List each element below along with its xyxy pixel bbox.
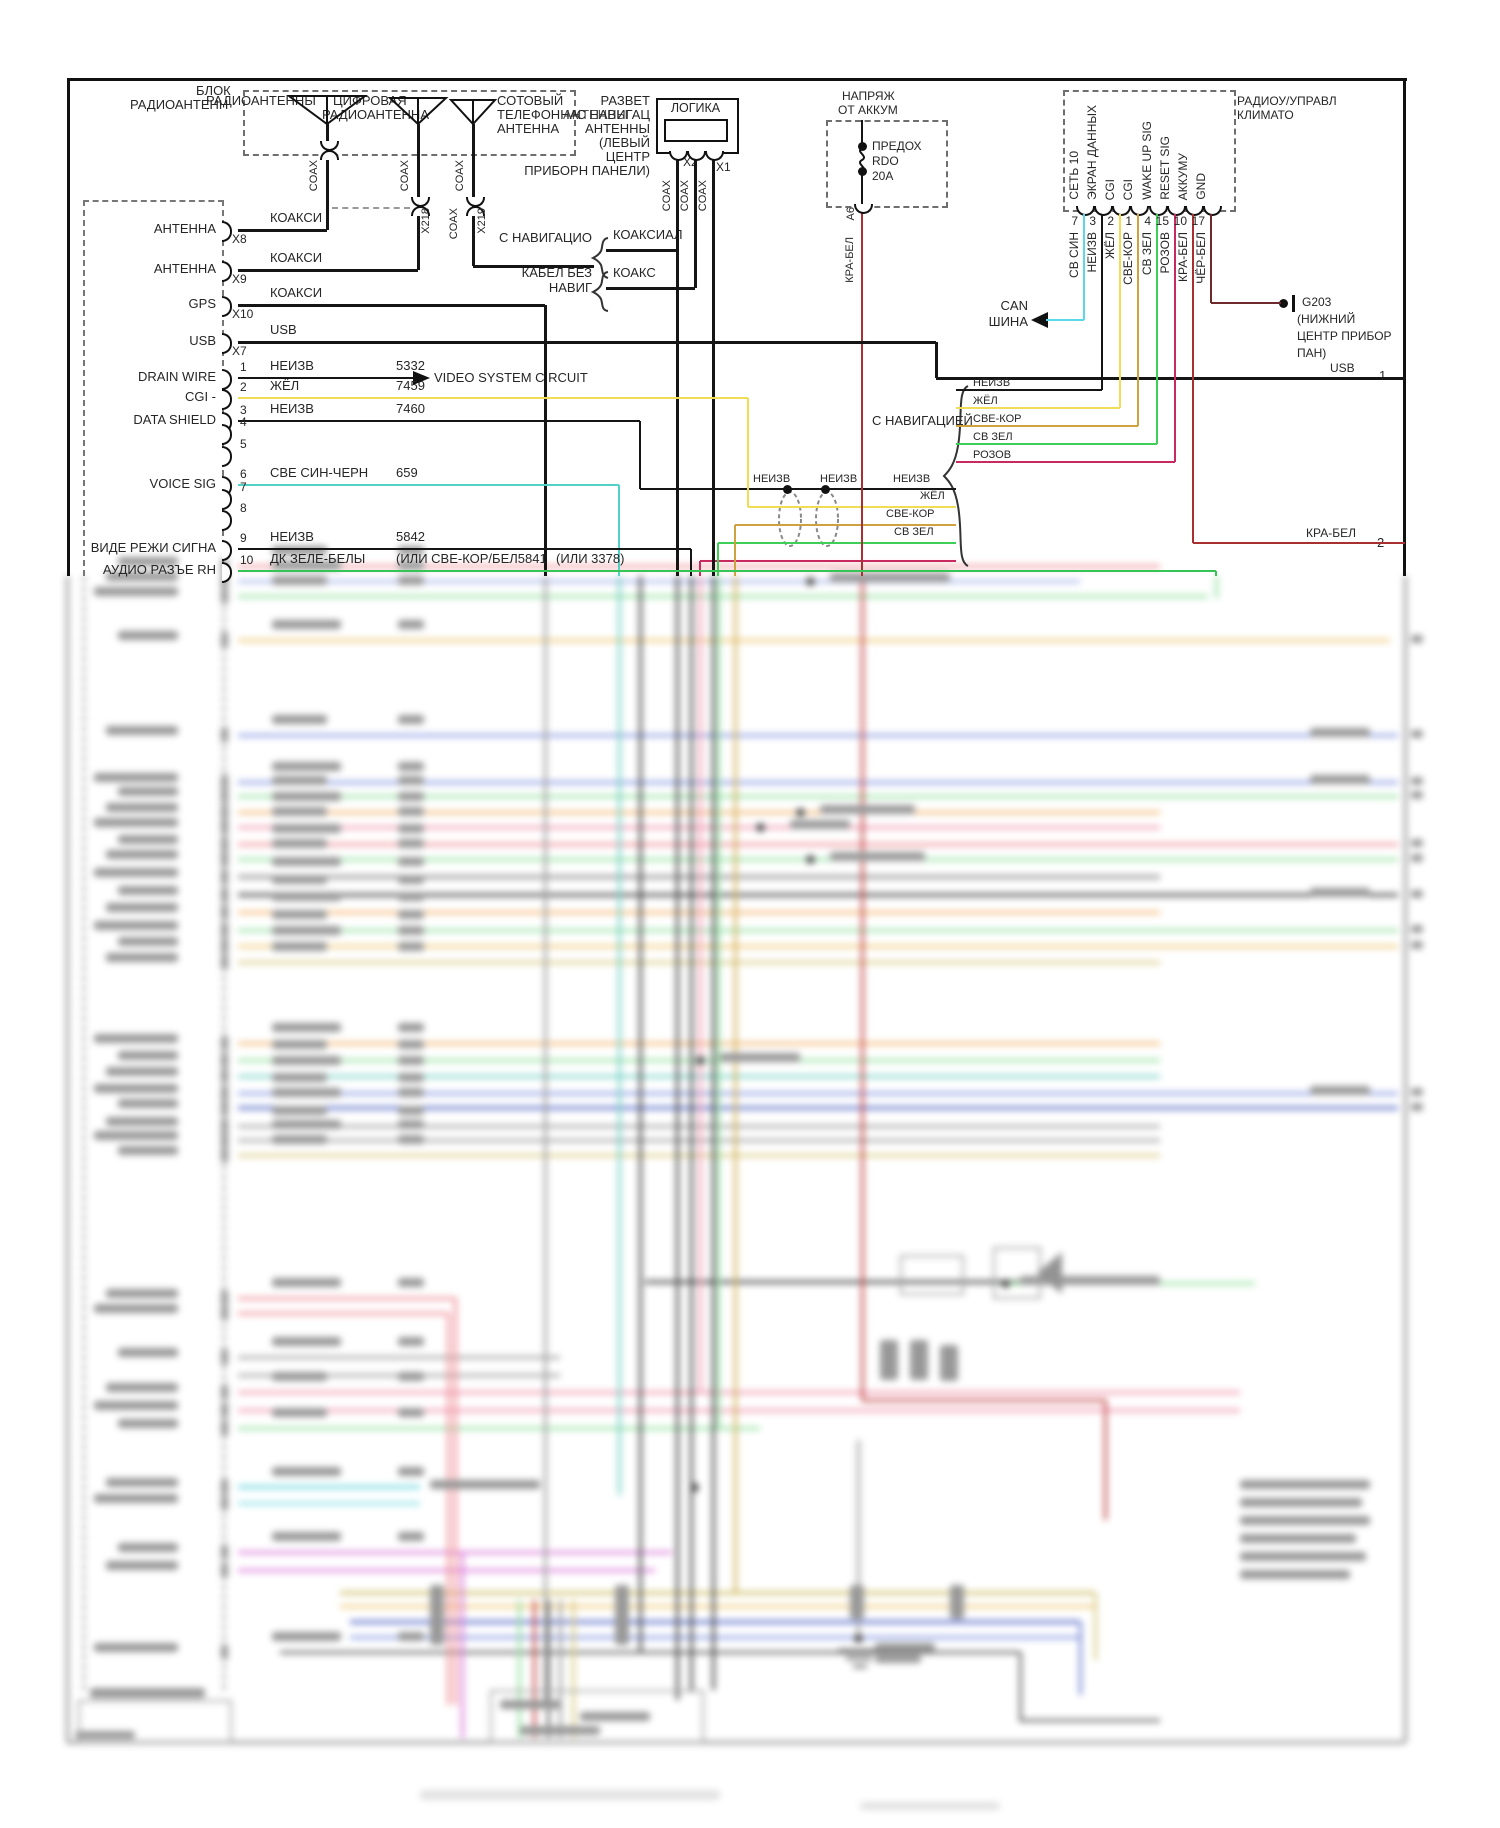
blurred-wire-label [272,1408,327,1417]
blurred-text [830,573,950,582]
wire [1137,214,1139,426]
blurred-text [830,852,925,861]
blurred-wire-label [272,715,327,724]
blurred-row-label [106,726,178,735]
blurred-wire-code [398,875,424,884]
blurred-wire-label [272,1120,341,1129]
wire [690,576,693,1690]
usb-edge-label: USB [1330,362,1355,375]
blurred-text [940,1345,958,1381]
blurred-wire-code [398,1023,424,1032]
junction-dot [783,485,792,494]
blurred-pin [221,588,228,604]
coax-label: КОАКС [613,266,656,281]
blurred-wire-label [272,926,341,935]
blurred-row-label [106,1561,178,1570]
no-nav-label-1: КАБЕЛ БЕЗ [488,266,592,281]
rotated-wire-label: КРА-БЕЛ [844,237,856,283]
blurred-wire-label [272,1372,327,1381]
blurred-wire-label [272,1135,327,1144]
wire [238,229,327,232]
blurred-row-label [106,1289,178,1298]
blurred-smudge [860,1802,1000,1810]
fuse-name: ПРЕДОХ [872,140,922,153]
blurred-pin [221,1147,228,1163]
wire [238,1297,455,1300]
wire [712,152,715,576]
blurred-text [910,1340,928,1380]
wire [238,580,1080,583]
wire [862,1399,1105,1402]
blurred-row-label [118,631,178,640]
blurred-wire-code [398,807,424,816]
blurred-text [950,1585,964,1619]
wire-color-label: НЕИЗВ [270,402,314,417]
fuse-feed-label-2: ОТ АККУМ [838,104,898,117]
rotated-wire-label: COAX [448,208,460,239]
blurred-row-label [106,1117,178,1126]
blurred-pin [221,1290,228,1306]
blurred-text [1240,1480,1370,1489]
wire [238,1356,560,1359]
blurred-row-label [118,1099,178,1108]
blurred-text [1310,775,1370,784]
wire [861,210,863,576]
left-pin-number: 2 [240,381,247,394]
blurred-row-label [118,886,178,895]
bundle-wire-label: СВ ЗЕЛ [973,431,1013,443]
blurred-row-label [94,921,178,930]
wire [473,265,594,268]
blurred-wire-label [272,824,341,833]
blurred-pin [221,632,228,648]
blurred-edge-pin [1411,730,1423,738]
wire [1079,1622,1082,1695]
bundle-wire-label: ЖЁЛ [920,490,945,502]
blurred-row-label [94,868,178,877]
blurred-wire-label [272,1040,327,1049]
wire-color-label: КОАКСИ [270,286,322,301]
wire [700,560,956,562]
wire [544,305,547,576]
left-pin-label-X8: АНТЕННА [86,222,216,237]
blurred-row-label [118,1419,178,1428]
left-pin-label-10: АУДИО РАЗЪЕ RH [86,563,216,578]
wire-color-label: ЧЁР-БЕЛ [1195,232,1208,284]
blurred-pin [221,1052,228,1068]
fuse-rating: 20A [872,170,893,183]
blurred-row-label [118,1051,178,1060]
wire [326,124,329,230]
blurred-wire-code [398,892,424,901]
blurred-pin [221,1068,228,1084]
rotated-wire-label: COAX [399,160,411,191]
wire [238,420,640,422]
blurred-text [880,1340,898,1380]
blurred-junction [756,823,765,832]
blurred-row-label [106,803,178,812]
blurred-pin [221,1305,228,1321]
blurred-wire-code [398,715,424,724]
blurred-wire-code [398,1467,424,1476]
wire [1211,302,1281,304]
can-bus-label-2: ШИНА [960,315,1028,330]
wire-code-label: (ИЛИ 3378) [556,552,624,567]
wire [1046,319,1084,321]
antenna-block-inside-label: РАДИОАНТЕННЫ [206,94,316,109]
blurred-pin [221,788,228,804]
blurred-pin [221,1420,228,1436]
left-pin-label-X9: АНТЕННА [86,262,216,277]
wire [238,1409,1240,1412]
video-circuit-note: VIDEO SYSTEM CIRCUIT [434,371,588,386]
blurred-edge-pin [1411,925,1423,933]
left-pin-label-X7: USB [86,334,216,349]
blurred-row-label [94,1304,178,1313]
bundle-wire-label: НЕИЗВ [820,473,857,485]
blurred-wire-code [398,1120,424,1129]
wire-code-label: 5842 [396,530,425,545]
blurred-wire-label [272,910,327,919]
blurred-row-label [106,1383,178,1392]
wire [1193,542,1405,544]
blurred-row-label [94,1034,178,1043]
blurred-text [90,1688,205,1698]
left-pin-number: 4 [240,416,247,429]
wire [238,1485,420,1489]
ground-loc-2: ЦЕНТР ПРИБОР [1297,330,1392,343]
wire-color-label: НЕИЗВ [270,530,314,545]
ground-loc-3: ПАН) [1297,347,1326,360]
hvac-pin-name: ЭКРАН ДАННЫХ [1086,105,1099,200]
blurred-junction [690,1483,699,1492]
coaxial-label: КОАКСИАЛ [613,228,683,243]
blurred-edge-pin [1411,854,1423,862]
wire-color-label: КОАКСИ [270,211,322,226]
left-pin-number: 7 [240,481,247,494]
blurred-wire-code [398,620,424,629]
wire-color-label: СВЕ СИН-ЧЕРН [270,466,368,481]
no-nav-label-2: НАВИГ [488,281,592,296]
wire [1215,576,1218,598]
blurred-edge-pin [1411,777,1423,785]
hvac-pin-number: 4 [1136,215,1151,228]
blurred-wire-label [272,1106,327,1115]
ground-bar-icon [1292,295,1295,312]
left-pin-label-6: VOICE SIG [86,477,216,492]
left-pin-number: X7 [232,345,247,358]
blurred-junction [854,1634,863,1643]
wire [734,576,737,1593]
blurred-row-label [106,1067,178,1076]
wire [238,341,936,344]
left-pin-number: 1 [240,361,247,374]
wire-code-label: 5332 [396,359,425,374]
blurred-row-label [94,773,178,782]
wire [1404,576,1407,1742]
wire-color-label: СВ СИН [1068,232,1081,278]
blurred-row-label [94,1494,178,1503]
blurred-wire-code [398,762,424,771]
left-pin-label-9: ВИДЕ РЕЖИ СИГНА [86,541,216,556]
rotated-wire-label: X219 [476,208,488,234]
blurred-wire-code [398,776,424,785]
blurred-box [900,1255,964,1295]
blurred-wire-code [398,1056,424,1065]
blurred-wire-code [398,576,424,585]
wire [717,576,720,1428]
wire-color-label: РОЗОВ [1159,232,1172,274]
wire-color-label: КОАКСИ [270,251,322,266]
hvac-pin-name: CGI [1122,179,1135,200]
blurred-wire-code [398,839,424,848]
blurred-pin [221,1402,228,1418]
wire [718,542,956,544]
junction-dot [858,167,867,176]
wire [861,174,863,204]
blurred-text [720,1053,800,1062]
wire [699,576,702,1392]
blurred-pin [221,851,228,867]
wire [238,1312,448,1315]
hvac-pin-name: RESET SIG [1159,136,1172,200]
hvac-pin-number: 7 [1063,215,1078,228]
blurred-pin [221,869,228,885]
left-pin-label-1: DRAIN WIRE [86,370,216,385]
rotated-wire-label: X218 [420,208,432,234]
wire [676,152,679,576]
wire [606,249,677,252]
blurred-wire-label [272,1337,341,1346]
wire [1104,1400,1107,1520]
left-pin-number: X8 [232,233,247,246]
blurred-row-label [94,1084,178,1093]
blurred-pin [221,887,228,903]
wire [350,1636,1080,1639]
blurred-wire-code [398,1278,424,1287]
wire [846,1657,872,1660]
blurred-wire-label [272,857,341,866]
blurred-row-label [94,1401,178,1410]
wire [238,269,418,272]
ground-loc-1: (НИЖНИЙ [1297,313,1355,326]
blurred-junction [696,1056,705,1065]
blurred-wire-code [398,1135,424,1144]
bundle-wire-label: СВЕ-КОР [973,413,1021,425]
frame-left [67,78,70,576]
wire-code-label: (ИЛИ СВЕ-КОР/БЕЛ5841 [396,552,547,567]
radio-connector-top-edge [83,200,224,202]
wire [238,548,691,550]
wire [618,576,621,1495]
junction-dot [821,485,830,494]
blurred-edge-pin [1411,1088,1423,1096]
bundle-wire-label: СВ ЗЕЛ [894,526,934,538]
blurred-wire-code [398,1632,424,1641]
blurred-pin [221,904,228,920]
logic-pin-x1: X1 [716,161,731,174]
hvac-pin-name: СЕТЬ 10 [1068,151,1081,200]
left-pin-label-3: DATA SHIELD [86,413,216,428]
left-pin-number: 5 [240,438,247,451]
blurred-edge-pin [1411,839,1423,847]
blurred-edge-pin [1411,890,1423,898]
blurred-row-label [94,818,178,827]
blurred-pin [221,1384,228,1400]
blurred-wire-code [398,926,424,935]
radio-connector-left-edge [83,200,85,576]
blurred-row-label [118,1543,178,1552]
wire-color-label: СВ ЗЕЛ [1141,232,1154,275]
blurred-pin [221,727,228,743]
wire [861,120,863,143]
blurred-pin [221,1544,228,1560]
wire [694,152,697,288]
wire-color-label: ЖЁЛ [270,379,299,394]
can-bus-label-1: CAN [960,299,1028,314]
left-pin-number: 10 [240,554,253,567]
blurred-edge-pin [1411,791,1423,799]
wire [461,1552,464,1738]
hvac-pin-name: CGI [1104,179,1117,200]
wire-code-label: 7460 [396,402,425,417]
blurred-text [430,1585,444,1619]
blurred-wire-code [398,942,424,951]
blurred-text [1310,888,1370,897]
wire [935,342,938,378]
blurred-wire-label [272,792,341,801]
bundle-wire-label: ЖЁЛ [973,395,998,407]
hvac-pin-name: АККУМУ [1177,153,1190,200]
wire [1020,1719,1160,1722]
blurred-text [615,1585,629,1619]
wire-code-label: 659 [396,466,418,481]
rotated-wire-label: COAX [697,180,709,211]
bundle-wire-label: РОЗОВ [973,449,1011,461]
blurred-pin [221,1100,228,1116]
wire [734,525,736,576]
blurred-text [1240,1498,1362,1507]
blurred-wire-code [398,1337,424,1346]
blurred-pin [221,836,228,852]
left-pin-number: 8 [240,502,247,515]
wire-color-label: КРА-БЕЛ [1177,232,1190,282]
hvac-pin-number: 2 [1099,215,1114,228]
wire [238,1502,420,1505]
blurred-text [1240,1570,1350,1579]
blurred-junction [806,577,815,586]
connector-edge [83,576,85,1690]
wire [1210,214,1212,303]
blurred-smudge [420,1790,720,1800]
blurred-wire-label [272,1088,341,1097]
wire [676,576,679,1700]
wire [238,734,1398,737]
blurred-pin [221,804,228,820]
antenna-lead-dashed [332,207,410,209]
blurred-row-label [94,1131,178,1140]
blurred-text [615,1615,629,1645]
wire [238,397,748,399]
blurred-box [490,1690,704,1744]
wire [640,488,956,490]
wire [238,1427,760,1430]
wire [238,595,1208,598]
wire [350,1620,1080,1624]
blurred-wire-label [272,839,327,848]
digital-antenna-label-2: РАДИОАНТЕННА [322,108,429,123]
blurred-wire-label [272,576,327,585]
blurred-wire-label [272,1632,341,1641]
splitter-label-6: ПРИБОРН ПАНЕЛИ) [470,164,650,179]
wire [454,1298,457,1705]
wire [639,576,642,1652]
wire [66,576,69,1742]
wire [861,576,864,1400]
wire [238,639,1390,642]
blurred-wire-label [272,1073,327,1082]
rotated-wire-label: COAX [308,160,320,191]
left-pin-number: X9 [232,273,247,286]
blurred-box [78,1700,232,1744]
blurred-row-label [106,903,178,912]
hvac-pin-number: 3 [1081,215,1096,228]
blurred-pin [221,1035,228,1051]
wire [712,576,715,1690]
hvac-pin-number: 15 [1154,215,1169,228]
blurred-wire-code [398,824,424,833]
blurred-pin [221,1349,228,1365]
battery-edge-label: КРА-БЕЛ [1306,527,1356,540]
blurred-row-label [106,1478,178,1487]
blurred-text [1240,1552,1366,1561]
blurred-text [1240,1516,1370,1525]
left-pin-label-X10: GPS [86,297,216,312]
frame-right [1403,78,1406,576]
wire [238,484,619,486]
rotated-wire-label: COAX [679,180,691,211]
blurred-row-label [118,1146,178,1155]
blurred-wire-label [272,807,327,816]
hvac-title-1: РАДИОУ/УПРАВЛ [1237,95,1337,108]
ground-id: G203 [1302,296,1331,309]
blurred-wire-label [272,1023,341,1032]
blurred-wire-code [398,1106,424,1115]
blurred-wire-code [398,792,424,801]
blurred-text [430,1615,444,1645]
blurred-pin [221,938,228,954]
blurred-text [820,805,915,814]
fuse-feed-label-1: НАПРЯЖ [842,90,895,103]
blurred-pin [221,1132,228,1148]
blurred-wire-code [398,1532,424,1541]
blurred-wire-label [272,1532,341,1541]
blurred-wire-label [272,1278,341,1287]
wire [747,398,749,507]
wire-color-label: НЕИЗВ [270,359,314,374]
blurred-row-label [118,1348,178,1357]
blurred-wire-label [272,942,327,951]
left-pin-number: 9 [240,532,247,545]
wire-color-label: СВЕ-КОР [1122,232,1135,285]
blurred-wire-code [398,910,424,919]
wire [67,1741,1405,1744]
blurred-text [850,1585,864,1619]
blurred-pin [221,1479,228,1495]
wire [1094,1593,1097,1660]
blurred-row-label [106,953,178,962]
wire [447,1313,450,1705]
